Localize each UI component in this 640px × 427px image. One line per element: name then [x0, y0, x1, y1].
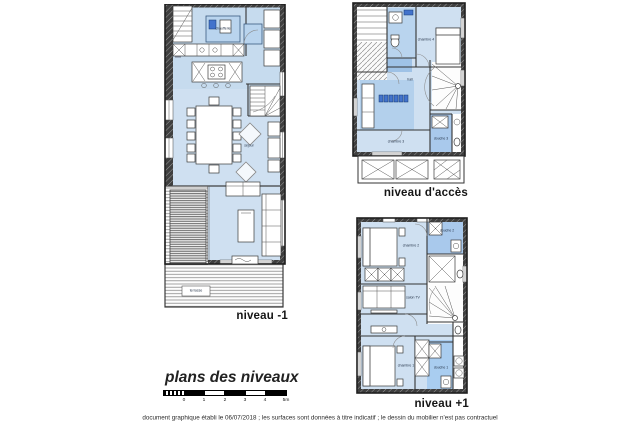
balcony: [358, 156, 464, 183]
scale-tick-1: 1: [203, 398, 206, 403]
room-label-douche1: douche 1: [434, 366, 448, 369]
room-label-sejour: séjour: [244, 144, 253, 147]
bench: [232, 256, 258, 264]
room-label-salon-tv: salon TV: [406, 296, 420, 299]
level-label-niveau-acces: niveau d'accès: [352, 187, 468, 199]
plan-drawing-niveau-plus1: [355, 216, 469, 396]
scale-tick-2: 2: [224, 398, 227, 403]
kitchen-counter: [173, 44, 244, 56]
scale-tick-5: 5m: [283, 398, 290, 403]
level-label-niveau-plus1: niveau +1: [355, 398, 469, 410]
coffee-table: [238, 210, 254, 242]
scale-bar-fine-divisions: [164, 391, 184, 395]
floor-plan-niveau-plus1: chambre 2 douche 2 salon TV chambre 1 do…: [355, 216, 469, 396]
bed: [436, 28, 460, 64]
winder-stairs: [250, 86, 280, 116]
disclaimer-text: document graphique établi le 06/07/2018 …: [32, 415, 608, 421]
level-label-niveau-minus1: niveau -1: [178, 310, 288, 322]
floor-plan-niveau-minus1: chaufferie séjour terrasse: [162, 4, 288, 310]
room-label-douche3: douche 3: [434, 137, 448, 140]
scale-tick-3: 3: [244, 398, 247, 403]
wardrobes: [264, 10, 280, 66]
tv-unit: [268, 122, 280, 172]
room-label-chambre1: chambre 1: [398, 364, 414, 367]
room-label-chambre4: chambre 4: [418, 38, 434, 41]
room-label-hall: hall: [407, 78, 412, 81]
room-label-chambre2: chambre 2: [403, 244, 419, 247]
room-label-douche2: douche 2: [440, 229, 454, 232]
scale-bar-segments: [163, 390, 287, 396]
dining-table: [187, 97, 241, 173]
room-label-terrasse: terrasse: [190, 289, 203, 292]
room-label-chaufferie: chaufferie: [215, 27, 230, 30]
utility-room: [244, 24, 262, 44]
sheet-title: plans des niveaux: [165, 369, 299, 387]
scale-tick-4: 4: [264, 398, 267, 403]
closet: [415, 340, 429, 376]
scale-bar: 0 1 2 3 4 5m: [163, 390, 287, 404]
scale-tick-0: 0: [183, 398, 186, 403]
plan-drawing-niveau-acces: [352, 2, 468, 186]
floor-plan-niveau-acces: hall chambre 4 chambre 3 douche 3: [352, 2, 468, 186]
staircase: [173, 6, 192, 42]
room-label-chambre3: chambre 3: [388, 140, 404, 143]
plan-drawing-niveau-minus1: [162, 4, 288, 310]
wardrobe: [365, 268, 404, 281]
console-table: [371, 326, 397, 333]
